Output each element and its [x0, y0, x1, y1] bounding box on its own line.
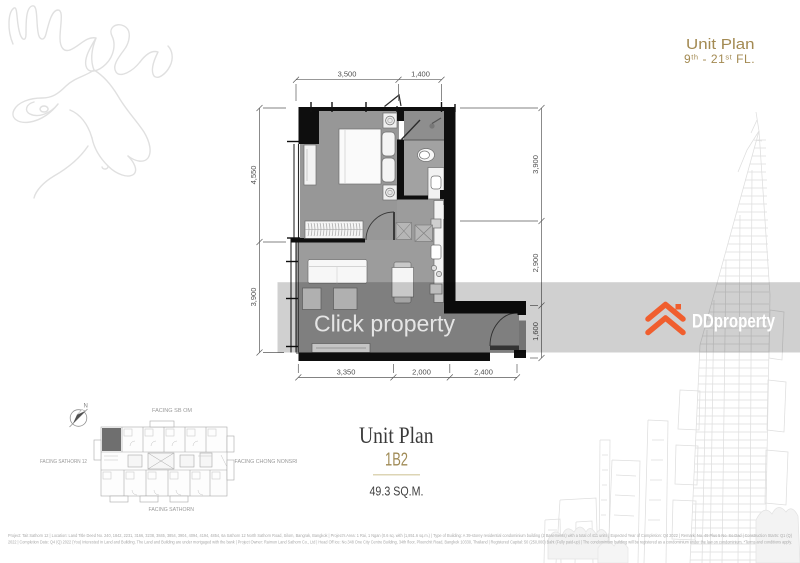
svg-text:FACING SATHORN: FACING SATHORN [149, 507, 195, 513]
svg-text:1B2: 1B2 [385, 450, 408, 470]
svg-text:3,900: 3,900 [531, 155, 540, 174]
svg-text:Project: Tait Sathorn 12 | Loc: Project: Tait Sathorn 12 | Location: Lan… [8, 533, 792, 538]
svg-text:4,550: 4,550 [249, 166, 258, 185]
svg-text:FACING SATHORN 12: FACING SATHORN 12 [40, 459, 87, 465]
svg-text:2,400: 2,400 [474, 368, 493, 377]
svg-text:DDproperty: DDproperty [692, 311, 775, 333]
svg-text:3,350: 3,350 [337, 368, 356, 377]
svg-text:Unit Plan: Unit Plan [359, 423, 434, 449]
svg-text:2022 | Completion Date: Q4 (Q): 2022 | Completion Date: Q4 (Q) 2022 (You… [8, 540, 792, 545]
svg-text:2,000: 2,000 [412, 368, 431, 377]
svg-text:3,900: 3,900 [249, 288, 258, 307]
svg-text:1,400: 1,400 [411, 70, 430, 79]
svg-text:3,500: 3,500 [338, 70, 357, 79]
svg-text:Click property: Click property [314, 311, 455, 337]
svg-text:FACING SB OM: FACING SB OM [152, 408, 193, 414]
svg-text:N: N [84, 404, 88, 410]
svg-text:Unit Plan: Unit Plan [686, 36, 755, 53]
svg-text:49.3 SQ.M.: 49.3 SQ.M. [370, 485, 424, 499]
svg-text:2,900: 2,900 [531, 254, 540, 273]
svg-text:FACING CHONG NONSRI: FACING CHONG NONSRI [235, 459, 298, 465]
svg-text:9th - 21st FL.: 9th - 21st FL. [684, 52, 755, 66]
